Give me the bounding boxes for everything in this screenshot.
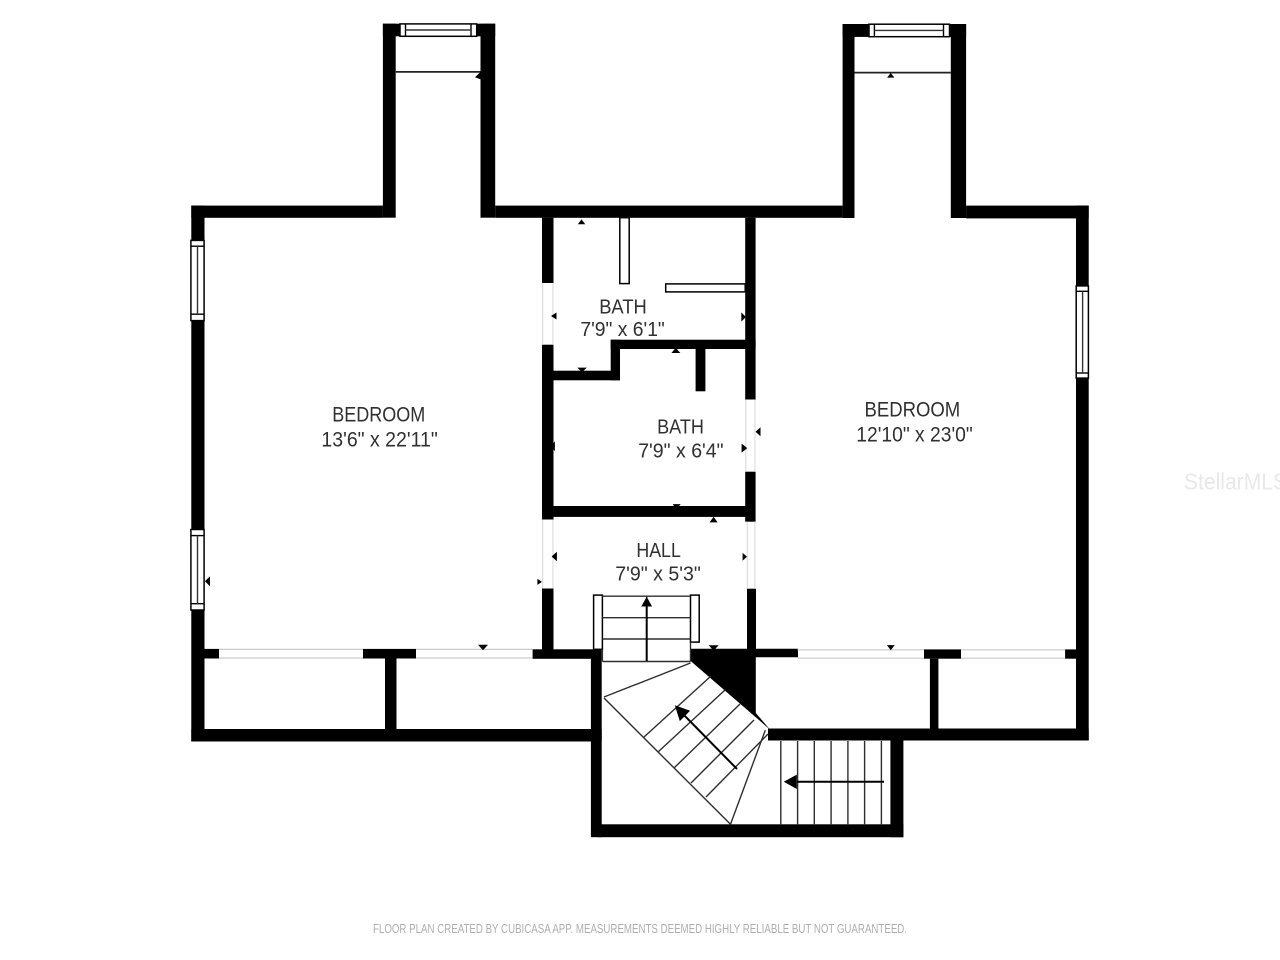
svg-text:BATH: BATH <box>599 296 647 319</box>
svg-text:7'9" x 6'4": 7'9" x 6'4" <box>638 440 723 463</box>
svg-text:StellarMLS: StellarMLS <box>1184 468 1280 494</box>
svg-text:12'10" x 23'0": 12'10" x 23'0" <box>856 424 973 447</box>
svg-text:7'9" x 6'1": 7'9" x 6'1" <box>580 318 664 341</box>
svg-text:BATH: BATH <box>657 416 704 439</box>
svg-text:BEDROOM: BEDROOM <box>332 403 425 426</box>
svg-text:BEDROOM: BEDROOM <box>865 399 961 422</box>
svg-text:7'9" x 5'3": 7'9" x 5'3" <box>615 562 701 585</box>
svg-text:HALL: HALL <box>636 539 681 562</box>
svg-text:13'6" x 22'11": 13'6" x 22'11" <box>321 428 437 451</box>
svg-text:FLOOR PLAN CREATED BY CUBICASA: FLOOR PLAN CREATED BY CUBICASA APP. MEAS… <box>373 921 907 936</box>
